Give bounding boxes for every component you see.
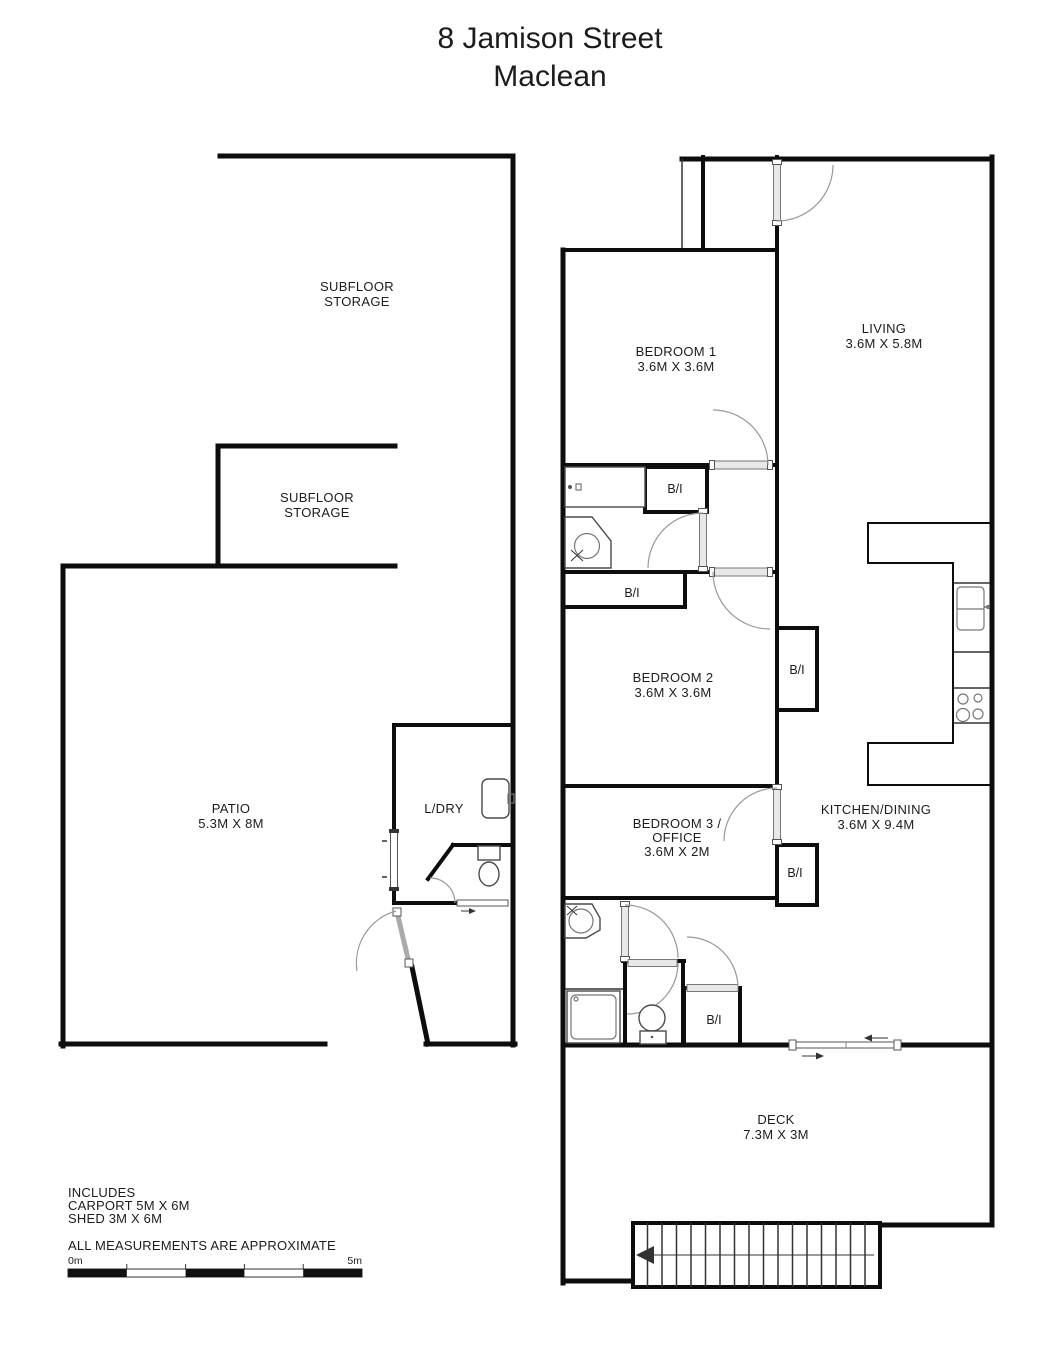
built-in-label-bathroom: B/I bbox=[667, 482, 682, 496]
bedroom3-door-leaf bbox=[774, 788, 781, 841]
bedroom1-door-leaf bbox=[713, 461, 770, 469]
shower-room-door-leaf bbox=[622, 905, 629, 958]
laundry-sliding-door bbox=[457, 900, 508, 906]
built-in-label-bedroom2-right: B/I bbox=[789, 663, 804, 677]
scale-start-label: 0m bbox=[68, 1255, 83, 1267]
cooktop bbox=[957, 694, 984, 722]
laundry-tub bbox=[482, 779, 509, 818]
bathroom-door-leaf bbox=[700, 512, 707, 568]
hall-built-in-door-leaf bbox=[687, 985, 738, 992]
laundry-toilet-bowl bbox=[479, 862, 499, 886]
room-label-laundry: L/DRY bbox=[424, 801, 464, 816]
bedroom2-door-leaf bbox=[713, 568, 770, 576]
shower-room-door-arc bbox=[625, 905, 678, 958]
bedroom1-door-arc bbox=[713, 410, 768, 465]
built-in-label-bedroom2-left: B/I bbox=[624, 586, 639, 600]
svg-text:3.6M X 2M: 3.6M X 2M bbox=[644, 844, 710, 859]
vanity-tap bbox=[568, 485, 572, 489]
laundry-wc-door-arc bbox=[430, 878, 455, 903]
page-title-line1: 8 Jamison Street bbox=[437, 22, 663, 55]
kitchen-bench bbox=[868, 523, 990, 785]
floor-plan-page: 0m 5m 8 Jamison Street Maclean SUBFLOOR … bbox=[0, 0, 1064, 1358]
svg-text:5.3M X 8M: 5.3M X 8M bbox=[198, 816, 264, 831]
laundry-toilet-cistern bbox=[478, 846, 500, 860]
bedroom3-door-arc bbox=[724, 788, 777, 841]
bedroom2-door-arc bbox=[713, 572, 770, 629]
room-label-patio: PATIO bbox=[212, 801, 251, 816]
svg-text:3.6M X 3.6M: 3.6M X 3.6M bbox=[635, 685, 712, 700]
entry-door-leaf bbox=[774, 164, 781, 221]
built-in-label-bedroom3: B/I bbox=[787, 866, 802, 880]
vanity bbox=[565, 467, 645, 507]
entry-door-arc bbox=[777, 165, 833, 221]
laundry-window bbox=[391, 832, 398, 888]
page-title-line2: Maclean bbox=[493, 60, 606, 93]
room-label-bedroom1: BEDROOM 1 bbox=[636, 344, 717, 359]
scale-end-label: 5m bbox=[347, 1255, 362, 1267]
toilet-room-door-leaf bbox=[628, 960, 677, 967]
bathroom-door-arc bbox=[648, 513, 703, 568]
lower-toilet-bowl bbox=[639, 1005, 665, 1031]
patio-door-arc bbox=[356, 911, 396, 971]
patio-door-leaf bbox=[397, 912, 409, 963]
room-label-subfloor1: SUBFLOOR bbox=[320, 279, 394, 294]
svg-text:STORAGE: STORAGE bbox=[324, 294, 389, 309]
svg-text:3.6M X 5.8M: 3.6M X 5.8M bbox=[846, 336, 923, 351]
svg-text:7.3M X 3M: 7.3M X 3M bbox=[743, 1127, 809, 1142]
svg-text:OFFICE: OFFICE bbox=[652, 830, 701, 845]
stairs bbox=[633, 1223, 880, 1287]
notes: INCLUDES CARPORT 5M X 6M SHED 3M X 6M AL… bbox=[68, 1185, 336, 1253]
scale-bar: 0m 5m bbox=[68, 1255, 362, 1277]
note-disclaimer: ALL MEASUREMENTS ARE APPROXIMATE bbox=[68, 1238, 336, 1253]
room-label-living: LIVING bbox=[862, 321, 906, 336]
svg-text:STORAGE: STORAGE bbox=[284, 505, 349, 520]
room-label-bedroom2: BEDROOM 2 bbox=[633, 670, 714, 685]
room-label-deck: DECK bbox=[757, 1112, 794, 1127]
outer-walls bbox=[61, 156, 992, 1283]
room-label-kitchen: KITCHEN/DINING bbox=[821, 802, 931, 817]
lower-tub bbox=[567, 991, 620, 1043]
fixtures bbox=[478, 467, 990, 1044]
floor-plan: 0m 5m 8 Jamison Street Maclean SUBFLOOR … bbox=[0, 0, 1064, 1358]
svg-text:3.6M X 3.6M: 3.6M X 3.6M bbox=[638, 359, 715, 374]
room-label-subfloor2: SUBFLOOR bbox=[280, 490, 354, 505]
room-label-bedroom3: BEDROOM 3 / bbox=[633, 816, 722, 831]
hall-built-in-door-arc bbox=[687, 937, 738, 988]
built-in-label-hall: B/I bbox=[706, 1013, 721, 1027]
svg-text:3.6M X 9.4M: 3.6M X 9.4M bbox=[838, 817, 915, 832]
doors-windows bbox=[356, 160, 901, 1060]
note-shed: SHED 3M X 6M bbox=[68, 1211, 162, 1226]
